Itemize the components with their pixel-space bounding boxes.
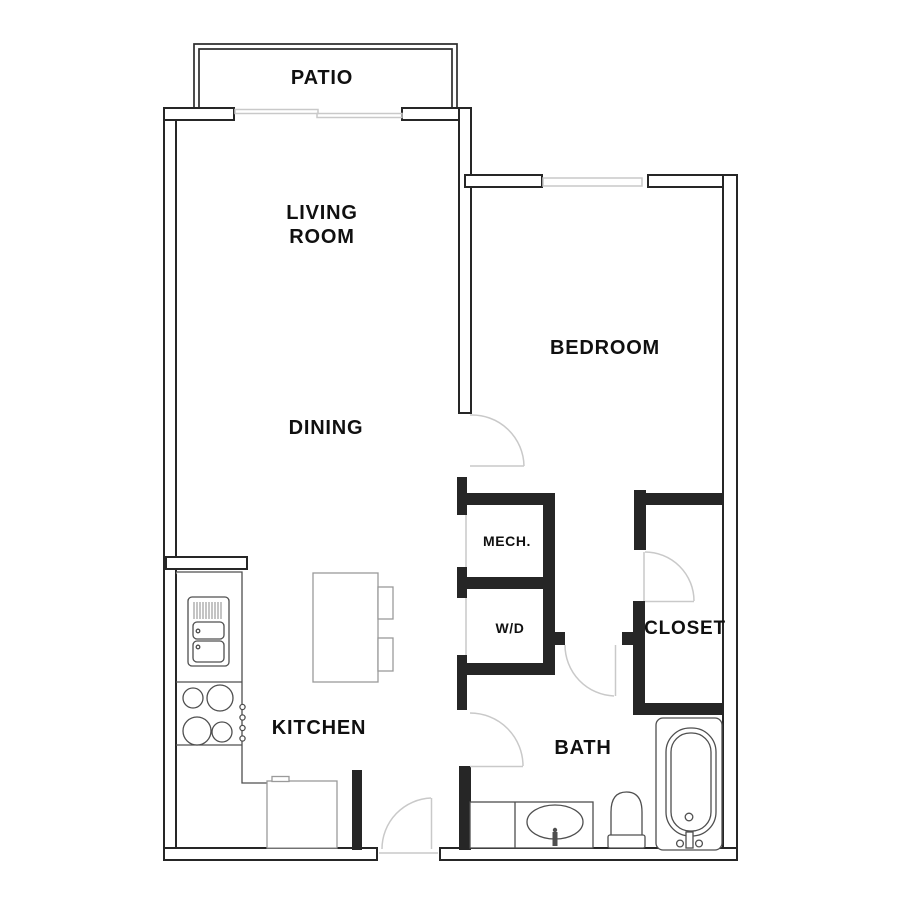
burner-small-2 [212, 722, 232, 742]
wall-mech-wd-divider [467, 577, 555, 589]
burner-large-2 [183, 717, 211, 745]
range-knob-4 [240, 736, 245, 741]
range-knob-2 [240, 715, 245, 720]
toilet-tank [608, 835, 645, 848]
vanity [470, 802, 593, 848]
sink-drain-2 [196, 645, 200, 649]
toilet [608, 792, 645, 848]
under-counter-appliance [267, 781, 337, 848]
wall-bath-west [459, 766, 471, 850]
wall-entry-stub [352, 770, 362, 850]
vanity-faucet [553, 832, 558, 846]
tub-spout [686, 832, 693, 848]
wall-right [723, 175, 737, 860]
room-label-patio: PATIO [291, 67, 353, 89]
room-label-wd: W/D [495, 620, 524, 636]
bath-door-arc [470, 713, 523, 766]
wall-mech-top [467, 493, 555, 505]
kitchen-sink [188, 597, 229, 666]
sink-drain-1 [196, 629, 200, 633]
bedroom-window [543, 178, 642, 186]
wall-living-bedroom-divider [459, 108, 471, 413]
wall-kitchen-stub [166, 557, 247, 569]
room-label-bedroom: BEDROOM [550, 337, 660, 359]
room-label-dining: DINING [289, 417, 364, 439]
floor-plan-canvas: PATIO LIVING ROOM DINING BEDROOM MECH. W… [0, 0, 900, 900]
room-label-mech: MECH. [483, 533, 531, 549]
wall-bedroom-top-left [465, 175, 542, 187]
wall-corridor-stub-3 [457, 655, 467, 710]
burner-small-1 [183, 688, 203, 708]
wall-bathdoor-jamb-left [555, 632, 565, 645]
patio-sliding-door-panel-2 [317, 114, 402, 118]
burner-large-1 [207, 685, 233, 711]
toilet-bowl [611, 792, 642, 836]
wall-top-right-segment [402, 108, 464, 120]
entry-door-arc [382, 798, 431, 849]
vanity-faucet-head [553, 828, 557, 832]
appliance-handle [272, 777, 289, 782]
bar-stool-2 [378, 638, 393, 671]
tub-handle-right [696, 840, 703, 847]
tub-handle-left [677, 840, 684, 847]
wall-closet-bottom [643, 703, 723, 715]
wall-corridor-stub-2 [457, 567, 467, 598]
wall-closet-top [634, 493, 723, 505]
room-label-bath: BATH [554, 737, 611, 759]
range-knob-1 [240, 704, 245, 709]
room-label-kitchen: KITCHEN [272, 717, 367, 739]
tub-drain [685, 813, 693, 821]
bar-stool-1 [378, 587, 393, 619]
wall-closet-west-upper [634, 490, 646, 550]
sink-basin-2 [193, 641, 224, 662]
bath-corridor-door-arc [565, 645, 614, 696]
range-knob-3 [240, 725, 245, 730]
closet-door-arc [645, 552, 694, 601]
room-label-living-2: ROOM [289, 226, 354, 248]
bedroom-door-arc [470, 415, 524, 466]
patio-sliding-door-panel-1 [235, 110, 318, 114]
bathtub [656, 718, 722, 850]
wall-left [164, 108, 176, 860]
floor-plan: PATIO LIVING ROOM DINING BEDROOM MECH. W… [0, 0, 900, 900]
wall-corridor-stub-1 [457, 477, 467, 515]
room-label-living-1: LIVING [286, 202, 357, 224]
kitchen-island [313, 573, 378, 682]
wall-bottom-left [164, 848, 377, 860]
wall-top-left-segment [164, 108, 234, 120]
room-label-closet: CLOSET [644, 618, 726, 639]
wall-bathdoor-jamb-right [622, 632, 633, 645]
wall-wd-bottom [467, 663, 555, 675]
